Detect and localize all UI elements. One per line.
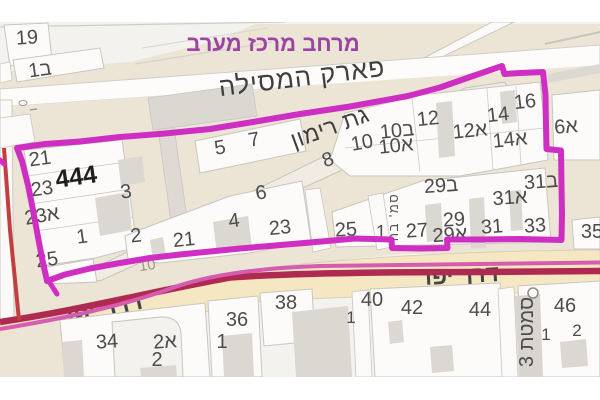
svg-text:31: 31 <box>480 215 504 238</box>
svg-text:6א: 6א <box>553 115 579 139</box>
svg-text:14א: 14א <box>492 127 529 153</box>
svg-text:21: 21 <box>27 147 52 172</box>
svg-text:31ב: 31ב <box>523 170 559 194</box>
svg-text:2: 2 <box>129 224 142 247</box>
svg-text:2: 2 <box>572 321 581 340</box>
svg-text:16: 16 <box>513 90 537 114</box>
svg-text:2: 2 <box>151 349 162 371</box>
svg-text:46: 46 <box>554 295 576 317</box>
svg-text:1: 1 <box>216 331 227 353</box>
svg-text:23: 23 <box>268 216 292 240</box>
svg-text:12א: 12א <box>452 118 489 144</box>
svg-text:10: 10 <box>349 130 375 156</box>
svg-text:21: 21 <box>172 228 196 252</box>
svg-text:14: 14 <box>486 103 510 127</box>
svg-text:38: 38 <box>275 292 297 314</box>
svg-text:סמ' בה: סמ' בה <box>386 193 401 241</box>
svg-text:מרחב מרכז מערב: מרחב מרכז מערב <box>186 31 359 56</box>
svg-text:19: 19 <box>15 26 39 49</box>
svg-text:444: 444 <box>54 160 99 194</box>
svg-text:44: 44 <box>469 299 491 321</box>
svg-text:34: 34 <box>95 330 119 353</box>
svg-text:27: 27 <box>405 219 429 242</box>
svg-text:35: 35 <box>581 221 600 243</box>
svg-text:1ב: 1ב <box>27 57 53 82</box>
svg-text:29ב: 29ב <box>423 174 459 198</box>
svg-text:33: 33 <box>523 214 547 237</box>
svg-text:10א: 10א <box>378 133 415 159</box>
svg-text:12: 12 <box>416 107 440 131</box>
svg-text:42: 42 <box>401 297 423 319</box>
svg-text:סמטת 3: סמטת 3 <box>516 297 538 367</box>
svg-text:36: 36 <box>226 309 248 331</box>
svg-text:31א: 31א <box>492 186 529 210</box>
svg-text:1: 1 <box>346 308 355 327</box>
svg-text:40: 40 <box>361 289 383 311</box>
svg-text:1: 1 <box>541 325 550 344</box>
